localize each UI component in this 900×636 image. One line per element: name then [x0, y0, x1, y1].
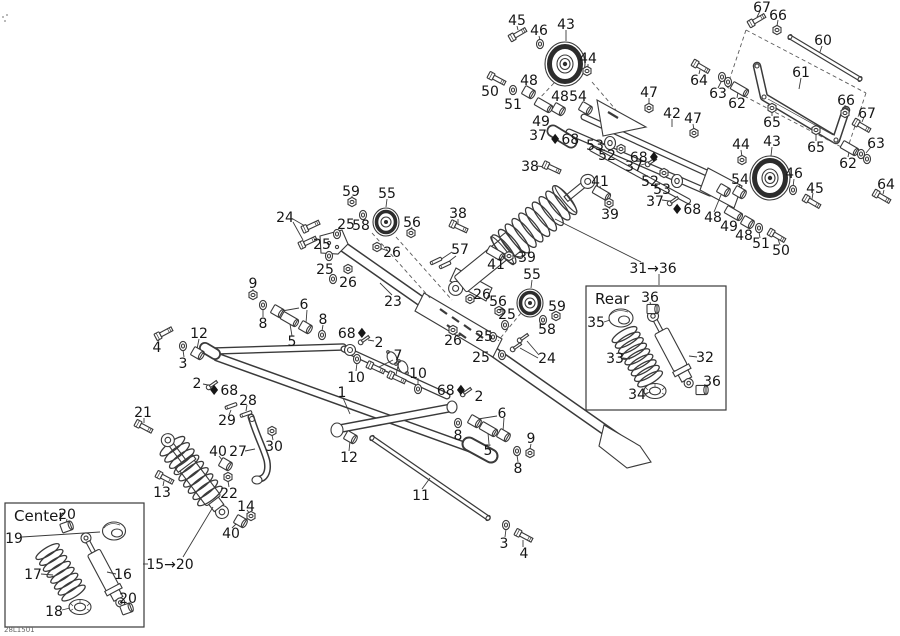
callout-60: 60 — [814, 33, 832, 49]
callout-7: 7 — [394, 348, 403, 364]
callout-59: 59 — [342, 184, 360, 200]
bushing-icon — [298, 321, 313, 335]
callout-4: 4 — [520, 546, 529, 562]
callout-59: 59 — [548, 299, 566, 315]
nut-icon — [268, 426, 276, 435]
nut-icon — [773, 25, 781, 34]
callout-38: 38 — [449, 206, 467, 222]
callout-62: 62 — [839, 156, 857, 172]
idler-wheel-left-small — [373, 208, 399, 236]
callout-48: 48 — [551, 89, 569, 105]
callout-8: 8 — [319, 312, 328, 328]
rear-track-shock — [439, 163, 605, 307]
washer-icon — [260, 300, 267, 309]
callout-25: 25 — [313, 237, 331, 253]
screw-icon — [509, 342, 522, 353]
washer-icon — [514, 446, 521, 455]
callout-25: 25 — [472, 350, 490, 366]
callout-41: 41 — [591, 174, 609, 190]
rear-inset-title: Rear — [595, 290, 630, 308]
nut-icon — [841, 108, 849, 117]
nut-icon — [660, 168, 668, 177]
bolt-icon — [514, 528, 534, 543]
callout-36: 36 — [703, 374, 721, 390]
callout-51: 51 — [752, 236, 770, 252]
callout-67: 67 — [858, 106, 876, 122]
callout-26: 26 — [339, 275, 357, 291]
washer-icon — [499, 350, 506, 359]
callout-40: 40 — [222, 526, 240, 542]
nut-icon — [526, 448, 534, 457]
callout-48: 48 — [520, 73, 538, 89]
drawing-number: 28L1501 — [4, 626, 35, 634]
callout-50: 50 — [772, 243, 790, 259]
callout-68: ♦68 — [549, 132, 579, 148]
callout-45: 45 — [806, 181, 824, 197]
callout-12: 12 — [340, 450, 358, 466]
callout-8: 8 — [454, 428, 463, 444]
callout-32: 32 — [696, 350, 714, 366]
callout-24: 24 — [538, 351, 556, 367]
callout-8: 8 — [259, 316, 268, 332]
corner-mark — [2, 14, 8, 22]
callout-3: 3 — [179, 356, 188, 372]
callout-1520: 15→20 — [146, 557, 193, 573]
callout-68: ♦68 — [671, 202, 701, 218]
nut-icon — [645, 103, 653, 112]
bolt-icon — [154, 326, 174, 341]
callout-18: 18 — [45, 604, 63, 620]
callout-54: 54 — [731, 172, 749, 188]
nut-icon — [768, 103, 776, 112]
parts-diagram: CenterRear 4546434448505149485437♦685352… — [0, 0, 900, 636]
callout-25: 25 — [498, 307, 516, 323]
callout-28: 28 — [239, 393, 257, 409]
callout-39: 39 — [518, 250, 536, 266]
callout-35: 35 — [587, 315, 605, 331]
callout-57: 57 — [451, 242, 469, 258]
pin-icon — [430, 257, 442, 265]
callout-37: 37 — [529, 128, 547, 144]
nut-icon — [505, 251, 513, 260]
callout-10: 10 — [347, 370, 365, 386]
callout-41: 41 — [487, 257, 505, 273]
callout-3: 3 — [500, 536, 509, 552]
callout-1: 1 — [338, 385, 347, 401]
callout-58: 58 — [352, 218, 370, 234]
callout-38: 38 — [521, 159, 539, 175]
callout-22: 22 — [220, 486, 238, 502]
callout-43: 43 — [557, 17, 575, 33]
callout-24: 24 — [276, 210, 294, 226]
callout-2: 2 — [475, 389, 484, 405]
bolt-icon — [301, 219, 321, 233]
idler-wheel-right — [750, 156, 790, 200]
callout-37: 37 — [646, 194, 664, 210]
callout-66: 66 — [837, 93, 855, 109]
callout-23: 23 — [384, 294, 402, 310]
callout-36: 36 — [641, 290, 659, 306]
callout-55: 55 — [378, 186, 396, 202]
callout-43: 43 — [763, 134, 781, 150]
spacer-icon — [479, 422, 499, 438]
washer-icon — [415, 384, 422, 393]
callout-42: 42 — [663, 106, 681, 122]
pin-icon — [439, 261, 451, 269]
callout-55: 55 — [523, 267, 541, 283]
washer-icon — [756, 223, 763, 232]
callout-68: 68♦ — [437, 383, 467, 399]
bolt-icon — [542, 161, 562, 175]
drawing-number-text: 28L1501 — [4, 626, 35, 634]
nut-icon — [583, 66, 591, 75]
washer-icon — [319, 330, 326, 339]
callout-25: 25 — [316, 262, 334, 278]
callout-26: 26 — [383, 245, 401, 261]
pin-icon — [225, 402, 237, 409]
callout-20: 20 — [58, 507, 76, 523]
washer-icon — [537, 39, 544, 48]
callout-12: 12 — [190, 326, 208, 342]
callout-3136: 31→36 — [629, 261, 676, 277]
callout-2: 2 — [375, 335, 384, 351]
callout-19: 19 — [5, 531, 23, 547]
callout-21: 21 — [134, 405, 152, 421]
nut-icon — [738, 155, 746, 164]
nut-icon — [373, 242, 381, 251]
callout-44: 44 — [732, 137, 750, 153]
nut-icon — [344, 264, 352, 273]
callout-37: 37 — [625, 159, 643, 175]
callout-63: 63 — [709, 86, 727, 102]
callout-34: 34 — [628, 387, 646, 403]
callout-48: 48 — [735, 228, 753, 244]
disc-icon — [672, 175, 683, 188]
callout-17: 17 — [24, 567, 42, 583]
washer-icon — [503, 520, 510, 529]
washer-icon — [510, 85, 517, 94]
nut-icon — [690, 128, 698, 137]
nut-icon — [224, 472, 232, 481]
callout-58: 58 — [538, 322, 556, 338]
callout-68: 68♦ — [338, 326, 368, 342]
callout-5: 5 — [484, 443, 493, 459]
callout-6: 6 — [300, 297, 309, 313]
callout-61: 61 — [792, 65, 810, 81]
washer-icon — [790, 185, 797, 194]
callout-20: 20 — [119, 591, 137, 607]
rear-arm-gusset — [597, 100, 646, 136]
bushing-icon — [496, 429, 511, 443]
callout-8: 8 — [514, 461, 523, 477]
adjuster-ring-18 — [69, 600, 91, 615]
callout-40: 40 — [209, 444, 227, 460]
washer-icon — [455, 418, 462, 427]
rail-rear-bracket — [599, 425, 651, 468]
callout-9: 9 — [527, 431, 536, 447]
coil-spring-17 — [34, 541, 87, 604]
callout-65: 65 — [807, 140, 825, 156]
callout-33: 33 — [606, 351, 624, 367]
callout-46: 46 — [530, 23, 548, 39]
callout-29: 29 — [218, 413, 236, 429]
callout-64: 64 — [877, 177, 895, 193]
callout-9: 9 — [249, 276, 258, 292]
shock-32 — [642, 307, 698, 391]
callout-64: 64 — [690, 73, 708, 89]
callout-27: 27 — [229, 444, 247, 460]
callout-47: 47 — [640, 85, 658, 101]
callout-6: 6 — [498, 406, 507, 422]
washer-icon — [180, 341, 187, 350]
callout-16: 16 — [114, 567, 132, 583]
callout-62: 62 — [728, 96, 746, 112]
bolt-icon — [155, 470, 175, 485]
callout-68: ♦68 — [208, 383, 238, 399]
callout-54: 54 — [569, 89, 587, 105]
callout-51: 51 — [504, 97, 522, 113]
callout-25: 25 — [475, 329, 493, 345]
bushing-icon — [343, 431, 358, 445]
callout-44: 44 — [579, 51, 597, 67]
callout-14: 14 — [237, 499, 255, 515]
callout-65: 65 — [763, 115, 781, 131]
callout-45: 45 — [508, 13, 526, 29]
callout-52: 52 — [598, 148, 616, 164]
idler-wheel-mid-small — [517, 289, 543, 317]
spacer-icon — [840, 141, 860, 157]
adjuster-ring-34 — [644, 384, 666, 399]
callout-66: 66 — [769, 8, 787, 24]
callout-13: 13 — [153, 485, 171, 501]
callout-4: 4 — [153, 340, 162, 356]
callout-50: 50 — [481, 84, 499, 100]
nut-icon — [812, 125, 820, 134]
callout-56: 56 — [403, 215, 421, 231]
nut-icon — [617, 144, 625, 153]
washer-icon — [354, 354, 361, 363]
washer-icon — [864, 154, 871, 163]
callout-63: 63 — [867, 136, 885, 152]
callout-39: 39 — [601, 207, 619, 223]
callout-26: 26 — [444, 333, 462, 349]
callout-46: 46 — [785, 166, 803, 182]
callout-2: 2 — [193, 376, 202, 392]
callout-10: 10 — [409, 366, 427, 382]
callout-30: 30 — [265, 439, 283, 455]
callout-5: 5 — [288, 334, 297, 350]
callout-47: 47 — [684, 111, 702, 127]
callout-11: 11 — [412, 488, 430, 504]
